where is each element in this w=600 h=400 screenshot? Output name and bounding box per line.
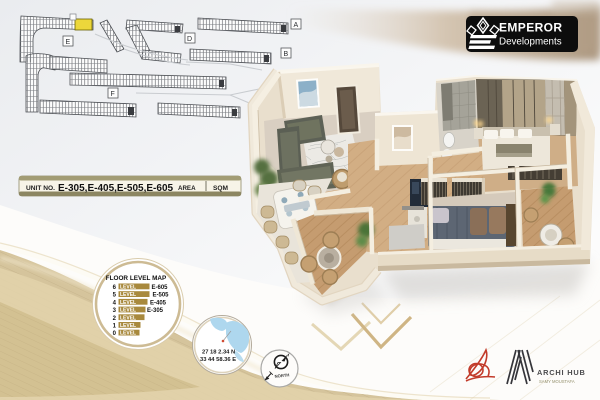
svg-text:33 44 58.36 E: 33 44 58.36 E xyxy=(200,357,236,363)
svg-text:E-405: E-405 xyxy=(150,300,167,306)
svg-text:E-305: E-305 xyxy=(147,308,164,314)
svg-text:E-505: E-505 xyxy=(153,293,170,299)
svg-text:27 18 2.34 N: 27 18 2.34 N xyxy=(202,350,235,356)
svg-text:ARCHI HUB: ARCHI HUB xyxy=(537,368,586,377)
svg-text:EMPEROR: EMPEROR xyxy=(499,21,562,35)
svg-text:Developments: Developments xyxy=(499,37,562,48)
svg-text:LEVEL: LEVEL xyxy=(120,308,136,314)
svg-text:LEVEL: LEVEL xyxy=(120,315,136,321)
svg-text:LEVEL: LEVEL xyxy=(120,331,136,337)
svg-text:B: B xyxy=(284,51,289,58)
svg-text:LEVEL: LEVEL xyxy=(120,300,136,306)
svg-text:LEVEL: LEVEL xyxy=(120,292,136,298)
svg-text:E: E xyxy=(66,39,71,46)
svg-text:SAMY MOUSTAFA: SAMY MOUSTAFA xyxy=(539,379,575,384)
svg-text:SQM: SQM xyxy=(213,185,229,192)
svg-text:E-605: E-605 xyxy=(152,285,169,291)
svg-text:LEVEL: LEVEL xyxy=(120,323,136,329)
svg-text:AREA: AREA xyxy=(178,185,196,192)
svg-text:FLOOR LEVEL MAP: FLOOR LEVEL MAP xyxy=(106,275,167,282)
svg-text:UNIT NO.: UNIT NO. xyxy=(26,185,55,192)
svg-text:A: A xyxy=(294,22,299,29)
svg-text:LEVEL: LEVEL xyxy=(120,285,136,291)
svg-text:E-305,E-405,E-505,E-605: E-305,E-405,E-505,E-605 xyxy=(58,183,174,194)
svg-text:F: F xyxy=(111,91,115,98)
svg-text:D: D xyxy=(187,36,192,43)
